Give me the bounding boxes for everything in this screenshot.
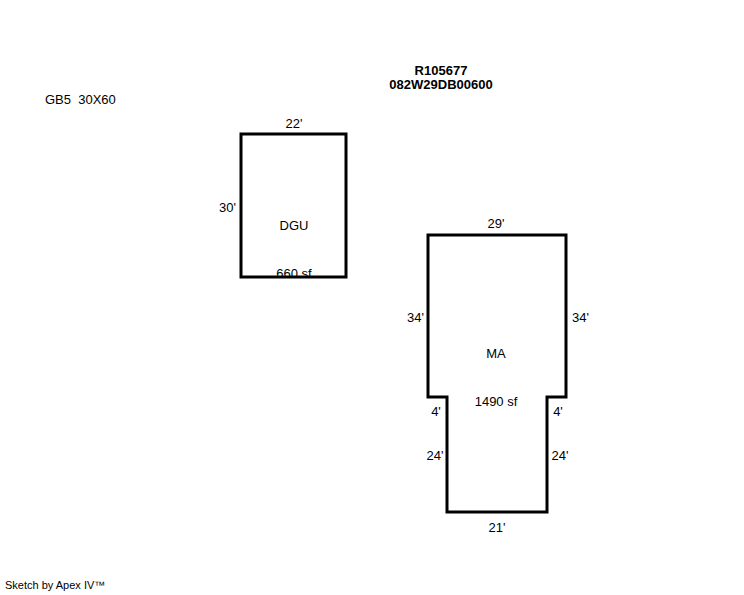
sketch-shapes: [0, 0, 744, 595]
ma-area: 1490 sf: [475, 394, 518, 410]
dgu-dim-top: 22': [286, 116, 303, 131]
ma-dim-right-upper: 34': [572, 310, 589, 325]
sketch-canvas: R105677 082W29DB00600 GB5 30X60 22' 30' …: [0, 0, 744, 595]
ma-dim-right-lower: 24': [552, 448, 569, 463]
sketch-note: GB5 30X60: [45, 92, 116, 107]
dgu-area: 660 sf: [276, 266, 311, 282]
dgu-label-block: DGU 660 sf: [276, 186, 311, 314]
parcel-number: R105677: [415, 63, 468, 78]
ma-dim-left-lower: 24': [427, 448, 444, 463]
sketch-credit: Sketch by Apex IV™: [5, 579, 105, 592]
ma-dim-left-step: 4': [431, 404, 441, 419]
ma-dim-top: 29': [488, 216, 505, 231]
ma-dim-bottom: 21': [489, 520, 506, 535]
dgu-dim-left: 30': [219, 200, 236, 215]
ma-label-block: MA 1490 sf: [475, 314, 518, 442]
account-number: 082W29DB00600: [389, 77, 492, 92]
dgu-name: DGU: [276, 218, 311, 234]
ma-name: MA: [475, 346, 518, 362]
ma-dim-right-step: 4': [553, 404, 563, 419]
ma-dim-left-upper: 34': [407, 310, 424, 325]
